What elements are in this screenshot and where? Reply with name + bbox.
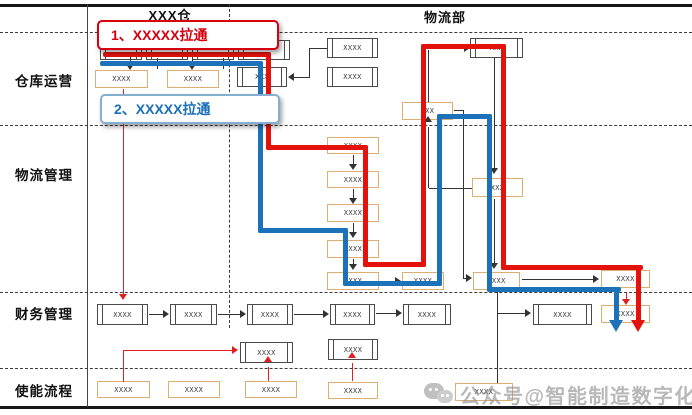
connector-line	[454, 110, 463, 111]
connector-line	[376, 313, 398, 314]
flow-line-blue	[343, 281, 442, 286]
flow-line-blue	[487, 114, 492, 292]
connector-line	[497, 313, 527, 314]
connector-line	[268, 367, 269, 381]
process-box: XXXX	[533, 304, 592, 325]
lane-label: 财务管理	[5, 303, 83, 323]
arrowhead	[525, 309, 531, 317]
process-box-label: XXXX	[418, 311, 436, 319]
arrowhead	[163, 310, 169, 318]
process-box: XXXX	[327, 67, 378, 87]
flow-line-blue	[614, 287, 619, 322]
process-box: XXXX	[327, 171, 379, 188]
arrowhead	[240, 310, 246, 318]
process-box-label: XXXX	[343, 44, 361, 52]
connector-line	[494, 58, 495, 170]
arrowhead	[119, 294, 127, 300]
process-box-label: XXXX	[184, 75, 202, 83]
connector-line	[218, 314, 242, 315]
arrowhead	[466, 274, 472, 282]
process-box: XXXX	[601, 270, 650, 288]
lane-label: 使能流程	[5, 380, 83, 400]
process-box: XXXX	[168, 381, 220, 398]
flow-line-blue	[487, 287, 621, 292]
process-box-label: XXXX	[344, 209, 362, 217]
connector-line	[292, 77, 309, 78]
lane-label: 物流管理	[5, 164, 83, 184]
process-box: XXXX	[327, 240, 379, 258]
wechat-icon	[424, 383, 454, 407]
arrowhead	[323, 310, 329, 318]
process-box-label: XXXX	[475, 388, 493, 396]
process-box: XXXX	[455, 383, 513, 401]
process-box-label: XXXX	[343, 73, 361, 81]
process-box-label: XXXX	[261, 311, 279, 319]
connector-line	[309, 48, 327, 49]
process-box-label: XXXX	[616, 275, 634, 283]
flow-line-blue	[100, 61, 263, 66]
process-box: XXXX	[95, 70, 148, 88]
callout-2: 2、XXXXX拉通	[100, 94, 280, 124]
process-box-label: XXXX	[344, 176, 362, 184]
connector-line	[309, 48, 310, 78]
flow-line-red	[421, 44, 426, 267]
connector-line	[494, 199, 495, 265]
arrowhead	[349, 232, 357, 238]
process-box: XXXX	[245, 381, 297, 398]
arrowhead	[396, 309, 402, 317]
process-box-label: XXXX	[185, 386, 203, 394]
process-box: XXXX	[327, 38, 378, 58]
process-box: XXXX	[327, 204, 379, 222]
connector-line	[352, 363, 353, 381]
arrowhead	[288, 73, 294, 81]
flow-arrow-blue	[609, 320, 623, 332]
process-box: XXXX	[330, 304, 375, 325]
arrowhead	[232, 346, 238, 354]
lane-divider	[0, 125, 692, 126]
flow-line-blue	[437, 114, 442, 286]
flow-line-red	[636, 265, 641, 322]
flow-line-blue	[343, 228, 348, 286]
flow-line-red	[421, 44, 506, 49]
process-box-label: XXXX	[616, 310, 634, 318]
process-box: XXXX	[97, 381, 150, 398]
flow-line-red	[363, 145, 368, 267]
org-column-title: 物流部	[400, 7, 490, 26]
callout-1: 1、XXXXX拉通	[97, 20, 279, 50]
lane-divider	[0, 292, 692, 293]
process-box: XXXX	[247, 304, 293, 325]
flow-line-red	[363, 262, 426, 267]
process-box: XXXX	[97, 304, 148, 325]
flow-arrow-red	[631, 320, 645, 332]
process-box: XXXX	[403, 304, 451, 325]
lane-label-divider	[87, 4, 88, 407]
connector-line	[463, 110, 464, 278]
flow-line-red	[266, 145, 368, 150]
process-box: XXX	[472, 178, 523, 197]
connector-line	[429, 188, 472, 189]
process-box-label: XXXX	[184, 311, 202, 319]
connector-line	[294, 314, 325, 315]
arrowhead	[622, 299, 630, 305]
process-box-label: XXXX	[113, 311, 131, 319]
process-box-label: XXXX	[262, 386, 280, 394]
process-box-label: XXXX	[114, 386, 132, 394]
top-border	[0, 4, 692, 7]
flow-line-blue	[258, 61, 263, 233]
process-box: XXXX	[170, 304, 217, 325]
lane-label: 仓库运营	[5, 70, 83, 90]
process-box-label: XXXX	[343, 311, 361, 319]
process-box-label: XXXX	[112, 75, 130, 83]
flow-line-red	[501, 44, 506, 270]
connector-line	[497, 291, 498, 383]
process-box: XXXX	[328, 382, 378, 399]
bottom-border	[0, 406, 692, 409]
flow-line-blue	[258, 228, 348, 233]
connector-line	[123, 351, 124, 382]
arrowhead	[593, 275, 599, 283]
connector-line	[428, 127, 429, 188]
connector-line	[428, 50, 429, 102]
connector-line	[123, 350, 234, 351]
swimlane-flowchart: XXX仓 物流部 仓库运营 物流管理 财务管理 使能流程 XXXXXXXXXXX…	[0, 0, 692, 415]
arrowhead	[348, 352, 356, 358]
process-box-label: XXXX	[344, 387, 362, 395]
flow-line-red	[103, 52, 270, 57]
arrowhead	[349, 198, 357, 204]
process-box: XXXX	[167, 70, 219, 88]
arrowhead	[349, 164, 357, 170]
lane-divider	[0, 368, 692, 369]
process-box-label: XXXX	[553, 311, 571, 319]
flow-line-blue	[437, 114, 492, 119]
flow-line-red	[501, 265, 643, 270]
arrowhead	[349, 264, 357, 270]
connector-line	[522, 279, 595, 280]
arrowhead	[264, 356, 272, 362]
